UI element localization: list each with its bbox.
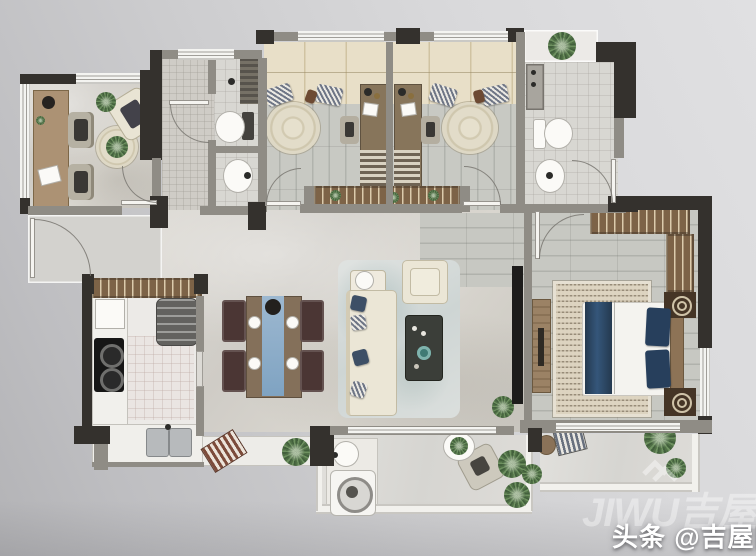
desk-lamp xyxy=(398,88,406,96)
balcony-plant xyxy=(504,482,530,508)
medallion-icon xyxy=(672,296,692,316)
wall xyxy=(524,212,532,422)
wall xyxy=(196,296,204,352)
shower-knob xyxy=(531,70,536,75)
chaise-cushion xyxy=(410,268,440,296)
wall xyxy=(698,196,712,348)
round-rug xyxy=(442,102,498,154)
desk-lamp xyxy=(364,88,372,96)
round-rug xyxy=(266,102,320,154)
sink-bowl xyxy=(146,428,169,457)
ledge-plant xyxy=(330,190,341,201)
dining-chair xyxy=(300,350,324,392)
console-slot xyxy=(538,328,544,366)
watermark-logo-mark-icon xyxy=(640,458,684,484)
wall xyxy=(208,140,216,212)
wall xyxy=(614,118,624,158)
window xyxy=(20,84,30,198)
window xyxy=(434,31,508,42)
window xyxy=(298,31,384,42)
table-bowl xyxy=(417,346,431,360)
sofa-pillow xyxy=(350,314,367,331)
side-table-top xyxy=(356,272,373,289)
rug-plant xyxy=(106,136,128,158)
desk-bowl xyxy=(42,96,55,109)
wall xyxy=(20,74,76,84)
chair-cushion xyxy=(426,122,435,137)
dining-chair xyxy=(222,300,246,342)
wall xyxy=(500,204,524,213)
chair-cushion xyxy=(74,119,88,141)
wall xyxy=(208,58,216,94)
plate xyxy=(249,358,260,369)
wall xyxy=(256,30,274,44)
bench-plant xyxy=(282,438,310,466)
wall xyxy=(28,206,122,215)
centerpiece xyxy=(265,299,281,315)
wall xyxy=(214,146,262,153)
balcony-plant xyxy=(522,464,542,484)
wardrobe xyxy=(666,234,694,292)
basin-faucet xyxy=(244,172,251,179)
sink-bowl xyxy=(169,428,192,457)
desk-paper xyxy=(363,103,377,116)
toilet-icon xyxy=(545,119,572,148)
duvet-fold xyxy=(614,302,615,394)
wall xyxy=(248,202,266,230)
wall xyxy=(386,42,393,204)
plate xyxy=(287,317,298,328)
desk-plant xyxy=(36,116,45,125)
shower-area xyxy=(240,58,260,104)
table-decor xyxy=(412,326,417,331)
shower-head-icon xyxy=(228,78,235,85)
wall xyxy=(92,462,204,467)
plate xyxy=(287,358,298,369)
wall xyxy=(74,426,110,444)
toilet-tank xyxy=(534,120,545,148)
dining-chair xyxy=(222,350,246,392)
desk-paper xyxy=(401,103,415,116)
floor-plan-photo: JIWU吉屋 头条 @吉屋网 xyxy=(0,0,756,556)
basin-faucet xyxy=(546,172,553,179)
wall xyxy=(614,58,636,118)
niche-plant xyxy=(548,32,576,60)
window xyxy=(178,49,234,60)
wall xyxy=(258,58,267,212)
wall xyxy=(82,292,92,436)
washer-door xyxy=(346,486,358,498)
chair-cushion xyxy=(345,122,354,137)
kitchen-bay-ledge xyxy=(92,278,202,298)
bed-runner xyxy=(585,302,612,394)
chair-cushion xyxy=(74,171,88,193)
refrigerator xyxy=(156,298,198,346)
table-decor xyxy=(414,364,419,369)
tv-wall xyxy=(512,266,523,404)
dining-chair xyxy=(300,300,324,342)
window xyxy=(556,423,680,431)
wall xyxy=(150,50,162,76)
wall xyxy=(516,32,525,212)
table-plant xyxy=(450,437,468,455)
stove-burner xyxy=(100,344,124,368)
wall xyxy=(194,274,208,294)
plate xyxy=(249,317,260,328)
wall xyxy=(196,386,204,436)
wall xyxy=(528,428,542,452)
cutting-board xyxy=(96,300,124,328)
sliding-window xyxy=(348,427,496,434)
window xyxy=(700,348,710,416)
sofa-pillow xyxy=(350,295,368,313)
kitchen-mat xyxy=(126,336,194,420)
desk-item xyxy=(374,93,380,99)
bed-pillow xyxy=(645,307,671,346)
floor-plant xyxy=(96,92,116,112)
bed-pillow xyxy=(645,349,671,388)
table-decor xyxy=(421,331,426,336)
toilet-icon xyxy=(216,112,244,142)
shower-knob xyxy=(531,82,536,87)
window xyxy=(76,73,140,84)
wall xyxy=(396,28,420,44)
ledge-plant xyxy=(428,190,439,201)
stove-burner xyxy=(100,368,124,392)
wall xyxy=(140,70,162,160)
wall xyxy=(82,274,94,294)
watermark-text: 头条 @吉屋网 xyxy=(612,517,756,554)
wall xyxy=(300,204,462,213)
medallion-icon xyxy=(672,393,692,413)
sink-faucet xyxy=(165,424,171,430)
desk-item xyxy=(408,93,414,99)
floor-plant xyxy=(492,396,514,418)
kitchen-door-track xyxy=(197,352,202,386)
